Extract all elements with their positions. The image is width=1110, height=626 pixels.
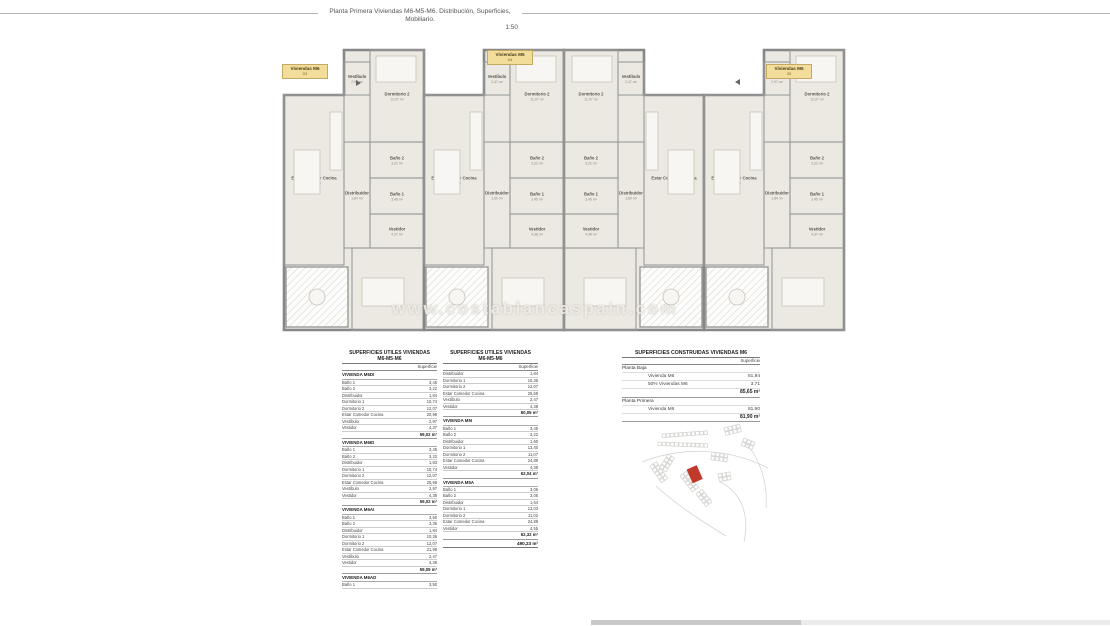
row-label: Baño 2: [342, 521, 355, 527]
room-area-label: 3,45 m²: [391, 198, 404, 202]
table-row: Vivienda M681,90: [622, 406, 760, 414]
row-value: 21,98: [427, 547, 437, 553]
entrance-arrow-icon: [356, 80, 361, 86]
room-area-label: 1,60 m²: [625, 197, 638, 201]
table-row: 50% Viviendas M63,71: [622, 381, 760, 389]
map-building-cluster: [658, 442, 708, 447]
map-building-cluster: [696, 489, 712, 506]
row-value: 2,47: [429, 554, 437, 560]
dwelling-unit-m5: Estar Comedor Cocina24,89 m²Terraza7,65 …: [564, 50, 704, 330]
row-label: Vestíbulo: [342, 419, 359, 425]
room-label: Baño 1: [530, 192, 545, 197]
furniture-icon: [572, 56, 612, 82]
row-label: Dormitorio 1: [443, 445, 465, 451]
row-label: Vestidor: [443, 526, 458, 532]
room-label: Distribuidor: [765, 191, 789, 196]
room-area-label: 11,07 m²: [530, 98, 544, 102]
row-label: Baño 1: [342, 582, 355, 588]
furniture-icon: [646, 112, 658, 170]
row-value: 12,07: [427, 541, 437, 547]
room-area-label: 4,38 m²: [531, 233, 544, 237]
section-header: VIVIENDA M6DI: [342, 372, 437, 379]
row-value: 3,45: [429, 380, 437, 386]
furniture-icon: [434, 150, 460, 194]
row-label: Baño 2: [342, 386, 355, 392]
table-title: SUPERFICIES CONSTRUIDAS VIVIENDAS M6: [622, 350, 760, 358]
row-label: Dormitorio 2: [342, 406, 364, 412]
row-value: 1,83: [429, 460, 437, 466]
terrace-table-icon: [309, 289, 325, 305]
row-value: 3,50: [429, 515, 437, 521]
row-value: 10,36: [528, 378, 538, 384]
room-label: Vestidor: [809, 227, 826, 232]
room-area-label: 2,97 m²: [771, 80, 784, 84]
room-label: Baño 2: [530, 156, 545, 161]
row-value: 25,69: [528, 391, 538, 397]
row-label: Vestíbulo: [443, 397, 460, 403]
room-area-label: 3,22 m²: [531, 162, 544, 166]
row-label: Dormitorio 1: [342, 534, 364, 540]
furniture-icon: [470, 112, 482, 170]
row-label: Baño 2: [443, 493, 456, 499]
row-label: 50% Viviendas M6: [622, 381, 688, 388]
row-label: Baño 1: [443, 426, 456, 432]
map-building-cluster: [718, 472, 731, 482]
unit-tag-number: 03: [283, 72, 327, 77]
map-road: [720, 482, 746, 542]
row-value: 3,06: [530, 487, 538, 493]
row-value: 3,22: [429, 454, 437, 460]
table-superficies-construidas: SUPERFICIES CONSTRUIDAS VIVIENDAS M6Supe…: [622, 350, 760, 422]
row-label: Vestidor: [443, 465, 458, 471]
row-label: Estar Comedor Cocina: [443, 391, 484, 397]
section-subtotal: 60,05 m²: [443, 410, 538, 417]
row-value: 13,40: [528, 445, 538, 451]
room-area-label: 3,45 m²: [531, 198, 544, 202]
row-value: 3,45: [530, 426, 538, 432]
row-label: Dormitorio 1: [342, 399, 364, 405]
row-label: Estar Comedor Cocina: [443, 458, 484, 464]
row-value: 24,89: [528, 458, 538, 464]
section-header: VIVIENDA M6ID: [342, 440, 437, 447]
row-label: Baño 2: [443, 432, 456, 438]
room-label: Vestíbulo: [622, 74, 641, 79]
unit-tag-m5-center: Viviendas M5 04: [487, 50, 533, 65]
map-road: [746, 444, 766, 508]
room-area-label: 11,07 m²: [584, 98, 598, 102]
row-value: 4,37: [429, 425, 437, 431]
row-value: 2,97: [429, 419, 437, 425]
row-value: 20,98: [427, 480, 437, 486]
table-title-line2: M6-M5-M6: [443, 356, 538, 364]
row-value: 1,84: [429, 528, 437, 534]
room-area-label: 3,45 m²: [585, 198, 598, 202]
column-header: Superficie: [622, 358, 760, 365]
map-building-cluster: [724, 424, 741, 435]
row-value: 2,47: [530, 397, 538, 403]
row-label: Dormitorio 2: [443, 513, 465, 519]
row-label: Baño 1: [342, 515, 355, 521]
row-value: 1,84: [530, 371, 538, 377]
row-value: 10,74: [427, 467, 437, 473]
dwelling-unit-m6: Estar Comedor Cocina20,98 m²Terraza7,65 …: [284, 50, 424, 330]
room-area-label: 1,84 m²: [771, 197, 784, 201]
row-label: Distribuidor: [443, 500, 464, 506]
room-area-label: 1,84 m²: [351, 197, 364, 201]
room-area-label: 4,37 m²: [811, 233, 824, 237]
room-label: Baño 1: [390, 192, 405, 197]
row-label: Dormitorio 1: [342, 467, 364, 473]
row-label: Vivienda M6: [622, 373, 674, 380]
section-header: VIVIENDA M6AI: [342, 507, 437, 514]
row-value: 2,97: [429, 486, 437, 492]
drawing-sheet: Planta Primera Viviendas M6-M5-M6. Distr…: [0, 0, 1110, 626]
row-label: Vestíbulo: [342, 554, 359, 560]
room-label: Distribuidor: [485, 191, 509, 196]
group-header: Planta Primera: [622, 398, 760, 406]
row-label: Estar Comedor Cocina: [342, 480, 383, 486]
row-value: 13,03: [528, 506, 538, 512]
room-area-label: 12,07 m²: [810, 98, 825, 102]
room-label: Dormitorio 2: [805, 92, 831, 97]
section-subtotal: 62,04 m²: [443, 471, 538, 478]
watermark-text: www.costablancaspain.com: [392, 299, 967, 319]
row-label: Vestíbulo: [342, 486, 359, 492]
room-area-label: 1,60 m²: [491, 197, 504, 201]
furniture-icon: [714, 150, 740, 194]
row-value: 11,07: [528, 452, 538, 458]
row-value: 3,22: [530, 432, 538, 438]
room-label: Vestidor: [583, 227, 600, 232]
room-area-label: 4,37 m²: [391, 233, 404, 237]
room-area-label: 3,45 m²: [811, 198, 824, 202]
section-subtotal: 59,09 m²: [342, 567, 437, 574]
site-location-map: [628, 424, 780, 556]
table-row: Baño 13,50: [342, 582, 437, 589]
room-area-label: 2,47 m²: [625, 80, 638, 84]
column-header: Superficie: [342, 364, 437, 371]
room-area-label: 2,47 m²: [491, 80, 504, 84]
room-label: Distribuidor: [619, 191, 643, 196]
furniture-icon: [668, 150, 694, 194]
room-label: Vestíbulo: [488, 74, 507, 79]
row-label: Vestidor: [342, 493, 357, 499]
row-label: Distribuidor: [443, 371, 464, 377]
row-label: Estar Comedor Cocina: [342, 547, 383, 553]
grand-total: 490,23 m²: [443, 540, 538, 548]
row-value: 3,22: [429, 386, 437, 392]
row-value: 12,07: [528, 384, 538, 390]
room-label: Vestidor: [529, 227, 546, 232]
row-value: 4,38: [429, 560, 437, 566]
room-area-label: 12,07 m²: [390, 98, 405, 102]
map-building-cluster: [741, 438, 755, 450]
row-label: Distribuidor: [342, 528, 363, 534]
row-label: Dormitorio 1: [443, 506, 465, 512]
row-label: Baño 1: [342, 380, 355, 386]
room-area-label: 4,38 m²: [585, 233, 598, 237]
row-label: Dormitorio 2: [443, 384, 465, 390]
room-label: Distribuidor: [345, 191, 369, 196]
row-value: 4,55: [530, 526, 538, 532]
table-superficies-utiles-right: SUPERFICIES UTILES VIVIENDASM6-M5-M6Supe…: [443, 350, 538, 548]
table-superficies-utiles-left: SUPERFICIES UTILES VIVIENDASM6-M5-M6Supe…: [342, 350, 437, 589]
room-label: Dormitorio 2: [579, 92, 605, 97]
row-label: Estar Comedor Cocina: [443, 519, 484, 525]
unit-tag-number: 05: [767, 72, 811, 77]
row-value: 3,71: [751, 381, 760, 388]
room-label: Baño 2: [390, 156, 405, 161]
room-area-label: 3,22 m²: [391, 162, 404, 166]
dwelling-unit-m6: Estar Comedor Cocina20,98 m²Terraza7,65 …: [704, 50, 844, 330]
entrance-arrow-icon: [735, 79, 740, 85]
furniture-icon: [376, 56, 416, 82]
furniture-icon: [294, 150, 320, 194]
row-label: Vestidor: [443, 404, 458, 410]
row-label: Dormitorio 1: [443, 378, 465, 384]
row-label: Baño 2: [342, 454, 355, 460]
row-value: 3,50: [429, 582, 437, 588]
room-area-label: 3,22 m²: [585, 162, 598, 166]
room-label: Baño 2: [810, 156, 825, 161]
table-row: Vivienda M681,94: [622, 373, 760, 381]
row-value: 12,07: [427, 406, 437, 412]
section-subtotal: 59,02 m²: [342, 499, 437, 506]
row-value: 3,45: [429, 447, 437, 453]
row-label: Distribuidor: [342, 393, 363, 399]
row-value: 1,64: [530, 500, 538, 506]
row-value: 3,35: [429, 521, 437, 527]
row-value: 1,84: [429, 393, 437, 399]
row-value: 12,07: [427, 473, 437, 479]
dwelling-unit-m5: Estar Comedor Cocina24,89 m²Terraza7,65 …: [424, 50, 564, 330]
room-label: Baño 2: [584, 156, 599, 161]
row-value: 24,89: [528, 519, 538, 525]
room-area-label: 3,22 m²: [811, 162, 824, 166]
row-value: 4,38: [530, 404, 538, 410]
row-label: Dormitorio 2: [443, 452, 465, 458]
group-subtotal: 81,90 m²: [622, 414, 760, 423]
table-title-line2: M6-M5-M6: [342, 356, 437, 364]
row-value: 4,38: [530, 465, 538, 471]
row-value: 81,90: [748, 406, 760, 413]
unit-tag-m6-right: Viviendas M6 05: [766, 64, 812, 79]
row-value: 4,38: [429, 493, 437, 499]
row-value: 81,94: [748, 373, 760, 380]
row-label: Baño 1: [342, 447, 355, 453]
room-label: Dormitorio 2: [385, 92, 411, 97]
column-header: Superficie: [443, 364, 538, 371]
row-value: 3,05: [530, 493, 538, 499]
row-label: Vestidor: [342, 560, 357, 566]
furniture-icon: [330, 112, 342, 170]
row-label: Distribuidor: [342, 460, 363, 466]
map-road: [656, 486, 726, 536]
row-label: Dormitorio 2: [342, 541, 364, 547]
row-value: 11,02: [528, 513, 538, 519]
row-label: Distribuidor: [443, 439, 464, 445]
room-label: Baño 1: [584, 192, 599, 197]
row-label: Vivienda M6: [622, 406, 674, 413]
horizontal-scrollbar-track[interactable]: [591, 620, 1110, 625]
row-value: 20,98: [427, 412, 437, 418]
furniture-icon: [750, 112, 762, 170]
group-header: Planta Baja: [622, 365, 760, 373]
section-subtotal: 62,32 m²: [443, 532, 538, 539]
row-label: Estar Comedor Cocina: [342, 412, 383, 418]
row-label: Vestidor: [342, 425, 357, 431]
row-value: 10,36: [427, 534, 437, 540]
room-label: Vestíbulo: [348, 74, 367, 79]
row-value: 10,74: [427, 399, 437, 405]
group-subtotal: 85,65 m²: [622, 389, 760, 398]
row-label: Dormitorio 2: [342, 473, 364, 479]
unit-tag-number: 04: [488, 58, 532, 63]
room-label: Baño 1: [810, 192, 825, 197]
row-value: 1,60: [530, 439, 538, 445]
room-label: Dormitorio 2: [525, 92, 551, 97]
map-building-cluster: [662, 431, 708, 438]
unit-tag-m6-left: Viviendas M6 03: [282, 64, 328, 79]
section-header: VIVIENDA M6AD: [342, 575, 437, 582]
horizontal-scrollbar-thumb[interactable]: [591, 620, 801, 625]
section-header: VIVIENDA M5I: [443, 418, 538, 425]
section-header: VIVIENDA M5A: [443, 480, 538, 487]
row-label: Baño 1: [443, 487, 456, 493]
section-subtotal: 59,02 m²: [342, 432, 437, 439]
room-label: Vestidor: [389, 227, 406, 232]
